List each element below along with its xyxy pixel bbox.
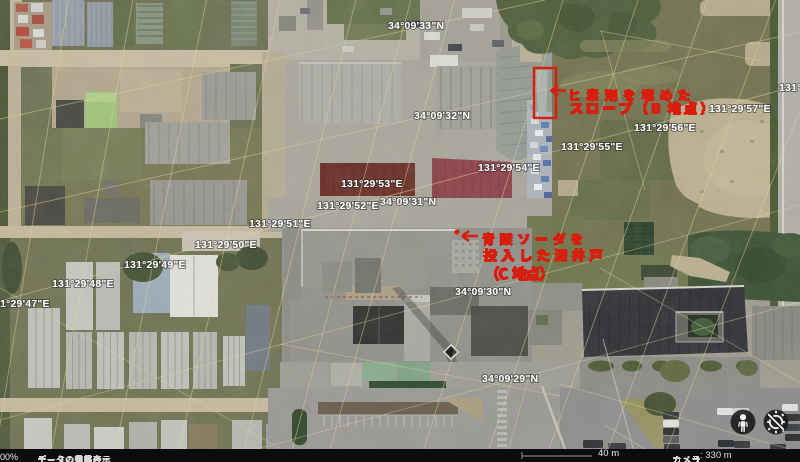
svg-text:34°09'29"N: 34°09'29"N xyxy=(482,373,538,385)
svg-text:34°09'30"N: 34°09'30"N xyxy=(455,286,511,298)
svg-text:34°09'31"N: 34°09'31"N xyxy=(380,196,436,208)
svg-text:131°29'50"E: 131°29'50"E xyxy=(195,239,257,251)
svg-text:131°29'49"E: 131°29'49"E xyxy=(124,259,186,271)
svg-text:: 330 m: : 330 m xyxy=(700,450,732,461)
svg-text:131°29'47"E: 131°29'47"E xyxy=(0,298,50,310)
svg-text:40 m: 40 m xyxy=(598,448,619,459)
svg-text:131°29'56"E: 131°29'56"E xyxy=(634,122,696,134)
svg-text:131°29'54"E: 131°29'54"E xyxy=(478,162,540,174)
svg-text:34°09'32"N: 34°09'32"N xyxy=(414,110,470,122)
svg-text:131°29'51"E: 131°29'51"E xyxy=(249,218,311,230)
svg-text:131°29'57"E: 131°29'57"E xyxy=(709,103,771,115)
svg-text:131°29'55"E: 131°29'55"E xyxy=(561,141,623,153)
svg-text:131°29'52"E: 131°29'52"E xyxy=(317,200,379,212)
svg-text:131°29'53"E: 131°29'53"E xyxy=(341,178,403,190)
svg-text:00%: 00% xyxy=(0,452,18,462)
svg-text:131°: 131° xyxy=(779,82,800,94)
svg-text:131°29'48"E: 131°29'48"E xyxy=(52,278,114,290)
svg-text:34°09'33"N: 34°09'33"N xyxy=(388,20,444,32)
